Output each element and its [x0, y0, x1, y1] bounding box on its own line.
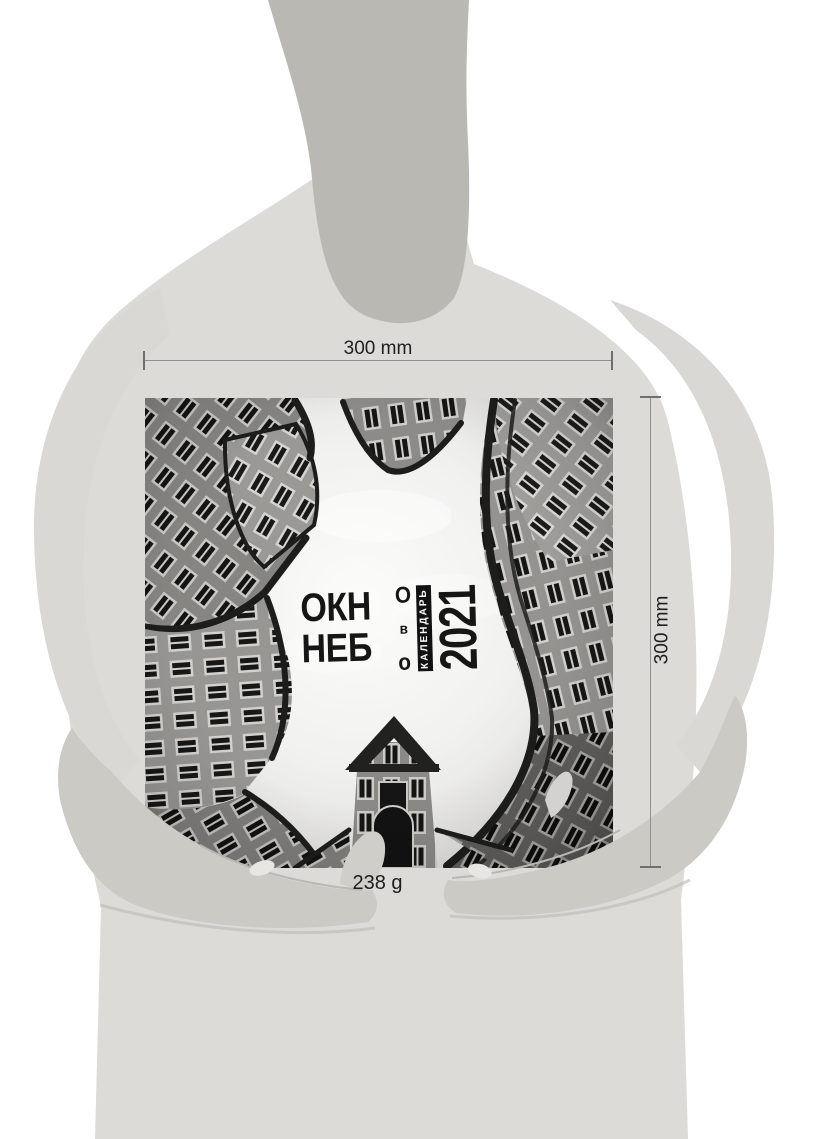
product-size-visualization: ОКН НЕБ О в о КАЛЕНДАРЬ 2021	[0, 0, 820, 1139]
right-forearm-hand	[444, 695, 747, 916]
width-dimension-label: 300 mm	[143, 339, 613, 358]
height-dimension: 300 mm	[649, 555, 675, 705]
right-fingernail	[467, 861, 494, 881]
right-thumb	[545, 772, 573, 818]
dimension-tick-top	[640, 396, 661, 398]
height-dimension-label: 300 mm	[651, 596, 673, 665]
dimension-line-horizontal	[143, 360, 613, 361]
width-dimension: 300 mm	[143, 339, 613, 369]
dimension-tick-left	[143, 351, 145, 370]
weight-label: 238 g	[330, 872, 425, 895]
left-forearm-hand	[58, 728, 377, 928]
dimension-tick-bottom	[640, 866, 661, 868]
dimension-tick-right	[611, 351, 613, 370]
hands-overlay	[0, 0, 820, 1139]
